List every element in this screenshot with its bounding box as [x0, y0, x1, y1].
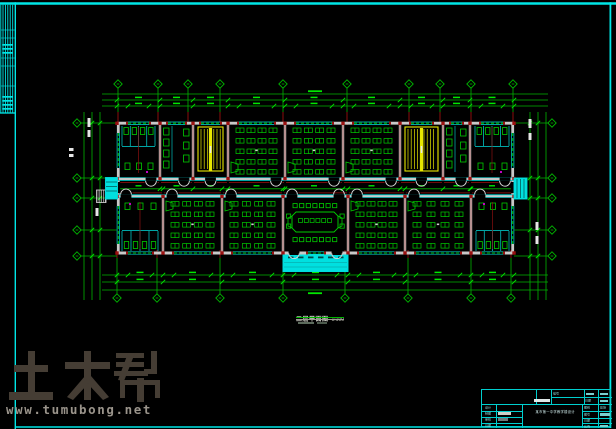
- plan-note-dash: [317, 322, 327, 324]
- tb-dash: [586, 393, 594, 396]
- tb-stamp-dash: [534, 399, 550, 403]
- tb-left-label-1: 设计: [485, 405, 491, 410]
- watermark: [8, 350, 168, 407]
- tb-left-label-2: 制图: [485, 411, 491, 416]
- cad-sheet-canvas: www.tumubong.net 二层平面图1:100 编号 日期 设计 制图: [0, 0, 616, 429]
- tb-left-label-3: 审核: [485, 417, 491, 422]
- tb-right-label-1: 图别: [584, 405, 590, 410]
- tb-dash: [498, 412, 511, 415]
- title-block: 编号 日期 设计 制图 审核 日期 图别 建施 图号 日期 比例 某市第一中学教…: [481, 389, 611, 427]
- plan-note-dash: [298, 322, 314, 324]
- tb-dash: [498, 418, 508, 421]
- plan-title-label: 二层平面图1:100: [296, 308, 376, 326]
- plan-title-underline-thin: [296, 319, 344, 320]
- tb-right-label-3: 日期: [584, 418, 590, 423]
- tb-dash: [600, 393, 608, 396]
- tb-right-label-2: 图号: [584, 412, 590, 417]
- tb-dash: [600, 400, 608, 403]
- tb-top-label-1: 编号: [553, 391, 559, 396]
- plan-title-underline: [296, 317, 344, 319]
- tb-dash: [600, 425, 608, 428]
- tb-left-label-4: 日期: [485, 423, 491, 428]
- tb-dash: [600, 413, 610, 416]
- watermark-url: www.tumubong.net: [6, 402, 152, 417]
- tb-project-title: 某市第一中学教学楼设计: [536, 409, 569, 414]
- tb-right-label-4: 比例: [584, 424, 590, 429]
- watermark-logo-icon: [8, 350, 168, 402]
- tb-top-label-2: 日期: [585, 398, 591, 403]
- tb-right-value: 建施: [600, 405, 606, 410]
